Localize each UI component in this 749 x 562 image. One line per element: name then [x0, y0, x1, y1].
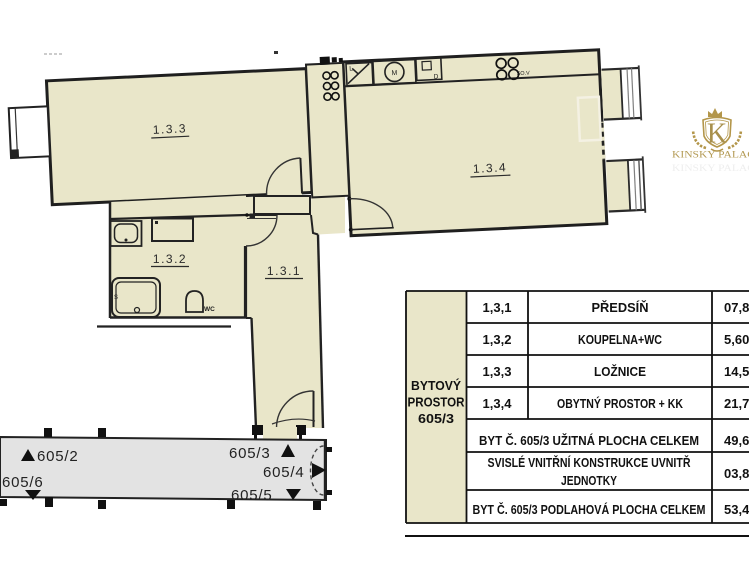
svg-text:07,80: 07,80	[724, 300, 749, 315]
svg-text:WC: WC	[204, 306, 215, 313]
svg-text:KINSKY PALACE: KINSKY PALACE	[672, 151, 749, 161]
svg-text:S: S	[114, 295, 118, 301]
svg-text:LOŽNICE: LOŽNICE	[594, 364, 646, 379]
svg-text:SVISLÉ VNITŘNÍ KONSTRUKCE UVNI: SVISLÉ VNITŘNÍ KONSTRUKCE UVNITŘ	[488, 455, 691, 470]
svg-text:1,3,3: 1,3,3	[483, 364, 512, 379]
svg-text:605/4: 605/4	[263, 464, 305, 481]
svg-text:03,80: 03,80	[724, 466, 749, 481]
svg-text:14,50: 14,50	[724, 364, 749, 379]
svg-text:BYT Č. 605/3 UŽITNÁ PLOCHA CEL: BYT Č. 605/3 UŽITNÁ PLOCHA CELKEM	[479, 433, 699, 448]
svg-text:SO.V: SO.V	[517, 71, 531, 78]
svg-text:605/5: 605/5	[231, 487, 273, 504]
svg-text:PŘEDSÍŇ: PŘEDSÍŇ	[592, 300, 649, 315]
svg-text:1.3.4: 1.3.4	[473, 160, 508, 176]
svg-text:49,60: 49,60	[724, 433, 749, 448]
svg-text:1,3,2: 1,3,2	[483, 332, 512, 347]
svg-text:BYT Č. 605/3 PODLAHOVÁ PLOCHA: BYT Č. 605/3 PODLAHOVÁ PLOCHA CELKEM	[473, 502, 706, 517]
svg-text:D: D	[434, 73, 439, 80]
svg-text:1.3.1: 1.3.1	[267, 264, 301, 278]
svg-text:M: M	[391, 70, 397, 77]
svg-text:605/3: 605/3	[418, 411, 454, 426]
svg-text:5,60: 5,60	[724, 332, 749, 347]
svg-text:53,40: 53,40	[724, 502, 749, 517]
svg-text:KOUPELNA+WC: KOUPELNA+WC	[578, 332, 662, 347]
svg-text:OBYTNÝ PROSTOR + KK: OBYTNÝ PROSTOR + KK	[557, 396, 683, 411]
svg-text:21,70: 21,70	[724, 396, 749, 411]
svg-text:1.3.2: 1.3.2	[153, 252, 187, 266]
svg-text:1,3,4: 1,3,4	[483, 396, 513, 411]
svg-text:PROSTOR: PROSTOR	[408, 395, 466, 410]
svg-text:1,3,1: 1,3,1	[483, 300, 512, 315]
svg-text:1.3.3: 1.3.3	[152, 121, 187, 137]
svg-text:KINSKY PALACE: KINSKY PALACE	[672, 164, 749, 174]
svg-text:BYTOVÝ: BYTOVÝ	[411, 378, 461, 393]
svg-text:JEDNOTKY: JEDNOTKY	[561, 473, 617, 488]
svg-text:605/2: 605/2	[37, 448, 79, 465]
svg-text:605/6: 605/6	[2, 474, 44, 491]
svg-text:K: K	[707, 119, 727, 150]
svg-text:605/3: 605/3	[229, 445, 271, 462]
